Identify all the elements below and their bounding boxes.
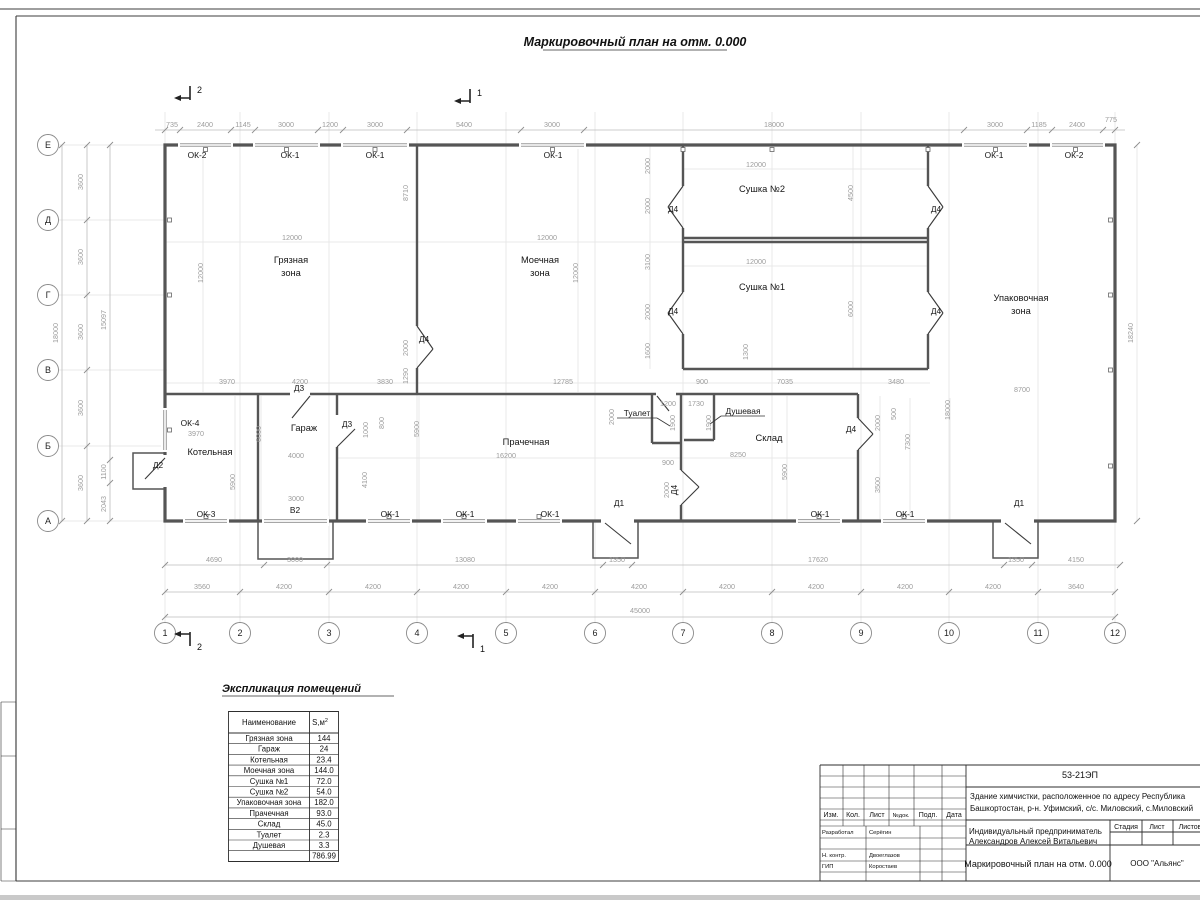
exp-row-area: 72.0 xyxy=(316,777,332,786)
dim: 12000 xyxy=(537,233,557,242)
dim: 1100 xyxy=(99,464,108,479)
explication-table: Экспликация помещений Наименование S,м2 … xyxy=(222,683,394,862)
dim: 4690 xyxy=(206,555,222,564)
section-marks: 2 1 2 1 xyxy=(174,85,485,654)
door-label: Д1 xyxy=(614,498,625,508)
exterior-walls xyxy=(165,145,1115,521)
opening-labels: ОК-2 ОК-1 ОК-1 ОК-1 ОК-1 ОК-2 ОК-4 ОК-3 … xyxy=(153,150,1084,519)
room-dry-1: Сушка №1 xyxy=(739,282,785,292)
tb-col-data: Дата xyxy=(946,812,962,819)
room-boiler: Котельная xyxy=(187,447,232,457)
dim: 4200 xyxy=(897,582,913,591)
axis-col-label: 12 xyxy=(1110,628,1120,638)
axis-row-label: А xyxy=(45,516,51,526)
exp-row-name: Котельная xyxy=(250,755,288,764)
dim: 18000 xyxy=(51,323,60,343)
dim: 18000 xyxy=(943,400,952,420)
dim: 1600 xyxy=(643,343,652,359)
dim: 3000 xyxy=(288,494,304,503)
dim: 1200 xyxy=(322,120,338,129)
room-pack-zone-2: зона xyxy=(1011,306,1031,316)
tb-stage: Стадия xyxy=(1114,824,1138,831)
door-label: Д4 xyxy=(931,306,942,316)
axis-grid-lines xyxy=(59,112,1137,622)
left-margin-boxes xyxy=(1,702,16,881)
walls xyxy=(133,145,1115,559)
window-label: ОК-4 xyxy=(181,418,200,428)
exp-row-area: 93.0 xyxy=(316,809,332,818)
windows xyxy=(161,141,1113,525)
dim: 12785 xyxy=(553,377,573,386)
room-laundry: Прачечная xyxy=(503,437,550,447)
dim: 2000 xyxy=(643,158,652,174)
dim: 3600 xyxy=(76,174,85,190)
exp-total: 786.99 xyxy=(312,852,336,861)
tb-col-list: Лист xyxy=(869,812,885,819)
dim: 4200 xyxy=(631,582,647,591)
dim: 4100 xyxy=(360,472,369,488)
door-d4-wash xyxy=(417,326,433,368)
window-label: ОК-1 xyxy=(381,509,400,519)
dim: 3100 xyxy=(643,254,652,270)
room-storage: Склад xyxy=(756,433,783,443)
dim: 1145 xyxy=(235,120,250,129)
axis-col-label: 7 xyxy=(680,628,685,638)
section-mark-2-bottom: 2 xyxy=(197,642,202,652)
room-pack-zone: Упаковочная xyxy=(993,293,1048,303)
dim: 800 xyxy=(377,417,386,429)
dim: 13080 xyxy=(455,555,475,564)
dim: 2400 xyxy=(1069,120,1085,129)
door-leaves xyxy=(145,186,1031,544)
exp-row-name: Душевая xyxy=(253,841,286,850)
dim: 2400 xyxy=(197,120,213,129)
dim: 8700 xyxy=(1014,385,1030,394)
page-title: Маркировочный план на отм. 0.000 xyxy=(524,35,747,49)
dim: 2000 xyxy=(643,198,652,214)
dim: 12000 xyxy=(196,263,205,283)
dim: 7035 xyxy=(777,377,793,386)
dim: 5900 xyxy=(228,474,237,490)
dim: 12000 xyxy=(571,263,580,283)
exp-row-name: Гараж xyxy=(258,745,281,754)
door-d1-left xyxy=(605,523,631,544)
section-mark-2-top: 2 xyxy=(197,85,202,95)
tb-col-podp: Подп. xyxy=(919,812,938,819)
floor-plan-svg: Маркировочный план на отм. 0.000 xyxy=(0,0,1200,900)
room-garage: Гараж xyxy=(291,423,318,433)
role-ncontr-name: Двоеглазов xyxy=(869,853,900,859)
org-name: ООО "Альянс" xyxy=(1130,859,1184,868)
dim: 4200 xyxy=(276,582,292,591)
window-label: ОК-1 xyxy=(456,509,475,519)
dim: 7300 xyxy=(903,434,912,450)
axis-row-label: Б xyxy=(45,441,51,451)
axis-col-label: 10 xyxy=(944,628,954,638)
pilaster-marks xyxy=(168,148,1113,519)
axis-row-label: Е xyxy=(45,140,51,150)
sheet-shadow xyxy=(0,895,1200,900)
dim: 3000 xyxy=(367,120,383,129)
door-label: Д4 xyxy=(668,204,679,214)
dim: 3830 xyxy=(377,377,393,386)
exp-header-name: Наименование xyxy=(242,718,296,727)
window-label: ОК-1 xyxy=(811,509,830,519)
exp-row-name: Грязная зона xyxy=(245,734,293,743)
axis-col-label: 2 xyxy=(237,628,242,638)
door-d3-top xyxy=(292,396,310,418)
exp-row-name: Туалет xyxy=(257,830,282,839)
dim: 3000 xyxy=(544,120,560,129)
dim: 4200 xyxy=(808,582,824,591)
dim: 4500 xyxy=(846,185,855,201)
dim: 900 xyxy=(696,377,708,386)
window-label: ОК-2 xyxy=(188,150,207,160)
tb-col-ndok: №док. xyxy=(893,813,910,819)
door-d3-side xyxy=(337,429,355,447)
exp-row-name: Сушка №1 xyxy=(250,777,289,786)
door-label: Д3 xyxy=(342,419,353,429)
exp-row-area: 54.0 xyxy=(316,788,332,797)
axis-row-label: Г xyxy=(46,290,51,300)
dim: 4000 xyxy=(288,451,304,460)
dim: 15097 xyxy=(99,310,108,330)
axis-col-label: 6 xyxy=(592,628,597,638)
dim: 3970 xyxy=(188,429,204,438)
dim: 1185 xyxy=(1031,120,1046,129)
dim: 6000 xyxy=(254,426,263,442)
porch-d1-right xyxy=(993,521,1038,558)
window-label: ОК-1 xyxy=(366,150,385,160)
dim: 12000 xyxy=(746,160,766,169)
exp-row-area: 3.3 xyxy=(319,841,330,850)
dim: 2000 xyxy=(607,409,616,425)
dim: 3600 xyxy=(76,400,85,416)
dim: 16200 xyxy=(496,451,516,460)
window-label: ОК-1 xyxy=(541,509,560,519)
dim: 900 xyxy=(662,458,674,467)
role-developed-name: Серёгин xyxy=(869,830,891,836)
dim: 500 xyxy=(889,408,898,420)
dim: 2000 xyxy=(401,340,410,356)
room-labels: Грязная зона Моечная зона Сушка №2 Сушка… xyxy=(187,184,1048,457)
dim: 2000 xyxy=(643,304,652,320)
dim: 12000 xyxy=(746,257,766,266)
dim: 8250 xyxy=(730,450,746,459)
axis-col-label: 8 xyxy=(769,628,774,638)
dim: 45000 xyxy=(630,606,650,615)
dim: 1350 xyxy=(609,555,625,564)
dim: 3600 xyxy=(76,249,85,265)
room-shower: Душевая xyxy=(726,406,761,416)
dim: 5400 xyxy=(456,120,472,129)
dim: 18000 xyxy=(764,120,784,129)
dim: 2043 xyxy=(99,496,108,512)
dim: 1730 xyxy=(688,399,704,408)
dim: 4150 xyxy=(1068,555,1084,564)
dim: 1350 xyxy=(1008,555,1024,564)
drawing-sheet: Маркировочный план на отм. 0.000 xyxy=(0,0,1200,900)
window-label: ОК-1 xyxy=(985,150,1004,160)
dim: 3000 xyxy=(278,120,294,129)
axis-col-label: 11 xyxy=(1033,628,1042,638)
interior-dimensions: 12000 12000 8710 2000 1290 3970 4200 383… xyxy=(188,158,1030,503)
door-label: Д4 xyxy=(846,424,857,434)
dim: 4200 xyxy=(542,582,558,591)
dim: 3000 xyxy=(987,120,1003,129)
porch-d1-left xyxy=(593,521,638,558)
door-d4-storage xyxy=(858,418,873,450)
dim: 775 xyxy=(1105,115,1117,124)
dim: 4200 xyxy=(719,582,735,591)
project-desc-line2: Башкортостан, р-н. Уфимский, с/с. Миловс… xyxy=(970,804,1193,813)
dim: 8710 xyxy=(401,185,410,201)
dim: 6000 xyxy=(846,301,855,317)
door-label: Д1 xyxy=(1014,498,1025,508)
client-line2: Александров Алексей Витальевич xyxy=(969,837,1097,846)
dim: 3480 xyxy=(888,377,904,386)
project-code: 53-21ЭП xyxy=(1062,770,1098,780)
doc-title: Маркировочный план на отм. 0.000 xyxy=(964,859,1111,869)
dim: 1200 xyxy=(660,399,676,408)
axis-circles: Е Д Г В Б А 1 2 3 4 5 6 7 8 9 10 11 12 xyxy=(38,135,1126,644)
window-label: ОК-3 xyxy=(197,509,216,519)
room-dirty-zone-2: зона xyxy=(281,268,301,278)
door-label: Д2 xyxy=(153,460,164,470)
exp-header-area: S,м2 xyxy=(312,718,328,727)
window-label: ОК-1 xyxy=(281,150,300,160)
exp-row-name: Склад xyxy=(258,820,281,829)
explication-title: Экспликация помещений xyxy=(222,683,361,695)
window-strips xyxy=(161,141,1105,525)
dim: 12000 xyxy=(282,233,302,242)
exp-row-area: 182.0 xyxy=(314,798,334,807)
exp-row-name: Моечная зона xyxy=(244,766,295,775)
door-d1-right xyxy=(1005,523,1031,544)
axis-col-label: 4 xyxy=(414,628,419,638)
door-label: Д4 xyxy=(931,204,942,214)
dim: 1000 xyxy=(361,422,370,438)
title-block: 53-21ЭП Здание химчистки, расположенное … xyxy=(820,765,1200,881)
dim: 3970 xyxy=(219,377,235,386)
gate-label: В2 xyxy=(290,505,301,515)
dim: 5900 xyxy=(412,421,421,437)
room-toilet: Туалет xyxy=(624,408,651,418)
tb-col-kol: Кол. xyxy=(846,812,860,819)
dimension-chains: 735 2400 1145 3000 1200 3000 5400 3000 1… xyxy=(51,115,1140,620)
room-wash-zone-2: зона xyxy=(530,268,550,278)
axis-row-label: В xyxy=(45,365,51,375)
role-gip-name: Коростаев xyxy=(869,864,897,870)
door-label: Д4 xyxy=(668,306,679,316)
axis-col-label: 1 xyxy=(162,628,167,638)
dim: 735 xyxy=(166,120,178,129)
dim: 1900 xyxy=(668,415,677,431)
exp-row-name: Сушка №2 xyxy=(250,788,289,797)
room-dirty-zone: Грязная xyxy=(274,255,308,265)
dim: 4200 xyxy=(985,582,1001,591)
tb-sheets: Листов xyxy=(1179,824,1200,831)
dim: 3000 xyxy=(287,555,303,564)
exp-row-area: 45.0 xyxy=(316,820,332,829)
dim: 2000 xyxy=(662,482,671,498)
room-wash-zone: Моечная xyxy=(521,255,559,265)
tb-sheet: Лист xyxy=(1149,824,1165,831)
dim: 1290 xyxy=(401,368,410,384)
axis-col-label: 3 xyxy=(326,628,331,638)
exp-row-area: 144.0 xyxy=(314,766,334,775)
exp-row-name: Упаковочная зона xyxy=(237,798,302,807)
dim: 3560 xyxy=(194,582,210,591)
role-ncontr: Н. контр. xyxy=(822,853,846,859)
dim: 1300 xyxy=(741,344,750,360)
client-line1: Индивидуальный предприниматель xyxy=(969,827,1102,836)
exp-row-area: 2.3 xyxy=(319,830,330,839)
room-dry-2: Сушка №2 xyxy=(739,184,785,194)
tb-col-izm: Изм. xyxy=(824,812,839,819)
exp-row-area: 23.4 xyxy=(316,755,332,764)
dim: 3640 xyxy=(1068,582,1084,591)
axis-col-label: 9 xyxy=(858,628,863,638)
section-mark-1-bottom: 1 xyxy=(480,644,485,654)
dim: 3600 xyxy=(76,324,85,340)
dim: 2000 xyxy=(873,415,882,431)
dim: 5900 xyxy=(780,464,789,480)
dim: 4200 xyxy=(292,377,308,386)
window-label: ОК-2 xyxy=(1065,150,1084,160)
interior-walls xyxy=(165,145,928,521)
window-label: ОК-1 xyxy=(896,509,915,519)
porch-v2 xyxy=(258,521,333,559)
dim: 3600 xyxy=(76,475,85,491)
role-developed: Разработал xyxy=(822,830,854,836)
role-gip: ГИП xyxy=(822,864,833,870)
axis-row-label: Д xyxy=(45,215,51,225)
dim: 18240 xyxy=(1126,323,1135,343)
door-label: Д4 xyxy=(419,334,430,344)
axis-col-label: 5 xyxy=(503,628,508,638)
exp-row-name: Прачечная xyxy=(249,809,288,818)
window-label: ОК-1 xyxy=(544,150,563,160)
project-desc-line1: Здание химчистки, расположенное по адрес… xyxy=(970,792,1186,801)
dim: 1900 xyxy=(704,415,713,431)
section-mark-1-top: 1 xyxy=(477,88,482,98)
exp-row-area: 144 xyxy=(317,734,331,743)
dim: 17620 xyxy=(808,555,828,564)
dim: 4200 xyxy=(365,582,381,591)
dim: 4200 xyxy=(453,582,469,591)
door-d4-laundry xyxy=(681,470,699,505)
dim: 3500 xyxy=(873,477,882,493)
exp-row-area: 24 xyxy=(320,745,329,754)
